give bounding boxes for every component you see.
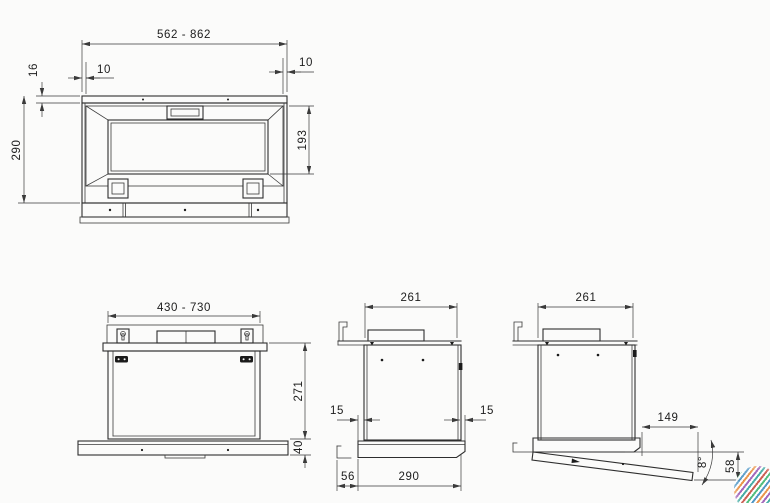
visor-height-dim-label: 40 — [293, 440, 305, 454]
rail-depth-dim-label: 16 — [28, 63, 40, 77]
hinge-side-mark-2 — [633, 350, 637, 357]
keyhole-bracket-right — [241, 329, 253, 343]
wall-bracket-bottom-2 — [513, 443, 533, 452]
dim-inset-right: 10 — [269, 57, 314, 94]
dim-gap-right: 15 — [444, 405, 494, 441]
dim-tilt-angle: 8° — [697, 440, 713, 485]
gap-right-dim-label: 15 — [480, 405, 494, 417]
side-view-open: 261 149 8° 58 — [513, 292, 744, 485]
vent-outlet-front — [157, 331, 215, 343]
dim-visor-height: 40 — [290, 440, 311, 468]
side-view-closed: 261 15 15 56 290 — [330, 292, 494, 491]
body-height-dim-label: 271 — [293, 381, 305, 402]
hinge-side-mark — [459, 363, 463, 370]
lamp-cutout-right — [243, 179, 263, 198]
wall-bracket-top-2 — [514, 322, 522, 341]
top-view: 562 - 862 10 10 16 — [11, 29, 314, 223]
hinge-right — [240, 356, 253, 363]
visor-front — [78, 441, 288, 458]
opening-depth-dim-label: 193 — [297, 130, 309, 151]
tilt-angle-dim-label: 8° — [697, 456, 709, 468]
dim-top-width: 562 - 862 — [82, 29, 287, 92]
side-top-depth-dim-label: 261 — [401, 292, 422, 304]
dim-rail-depth: 16 — [28, 63, 80, 117]
gap-left-dim-label: 15 — [330, 405, 344, 417]
lamp-cutout-left — [108, 179, 128, 198]
hinge-left — [115, 356, 128, 363]
drawing-sheet: 562 - 862 10 10 16 — [0, 0, 770, 503]
wall-gap-dim-label: 56 — [341, 471, 355, 483]
inset-left-dim-label: 10 — [97, 64, 111, 76]
dim-gap-left: 15 — [330, 405, 380, 441]
dim-opening-depth: 193 — [270, 106, 314, 174]
dim-front-width: 430 - 730 — [108, 302, 260, 323]
dim-total-depth: 290 — [11, 96, 80, 203]
technical-drawing: 562 - 862 10 10 16 — [0, 0, 770, 503]
dim-panel-length: 149 — [642, 412, 698, 472]
dim-body-height: 271 — [269, 343, 311, 439]
keyhole-bracket-left — [117, 329, 129, 343]
vent-outlet-top — [167, 106, 203, 119]
vent-outlet-side — [368, 330, 424, 341]
dim-inset-left: 10 — [68, 62, 114, 94]
open-top-depth-dim-label: 261 — [576, 292, 597, 304]
wall-bracket-top — [339, 322, 347, 341]
body-depth-dim-label: 290 — [399, 471, 420, 483]
panel-length-dim-label: 149 — [658, 412, 679, 424]
top-width-dim-label: 562 - 862 — [157, 29, 211, 41]
total-depth-dim-label: 290 — [11, 140, 23, 161]
drop-height-dim-label: 58 — [725, 459, 737, 473]
dim-bottom-depths: 56 290 — [337, 454, 461, 491]
front-width-dim-label: 430 - 730 — [157, 302, 211, 314]
visor-side — [358, 441, 465, 458]
front-view: 430 - 730 271 40 — [78, 302, 311, 468]
vent-outlet-side-2 — [543, 329, 600, 341]
wall-bracket-bottom — [337, 446, 351, 458]
inset-right-dim-label: 10 — [299, 57, 313, 69]
tilted-visor-panel — [532, 452, 693, 481]
